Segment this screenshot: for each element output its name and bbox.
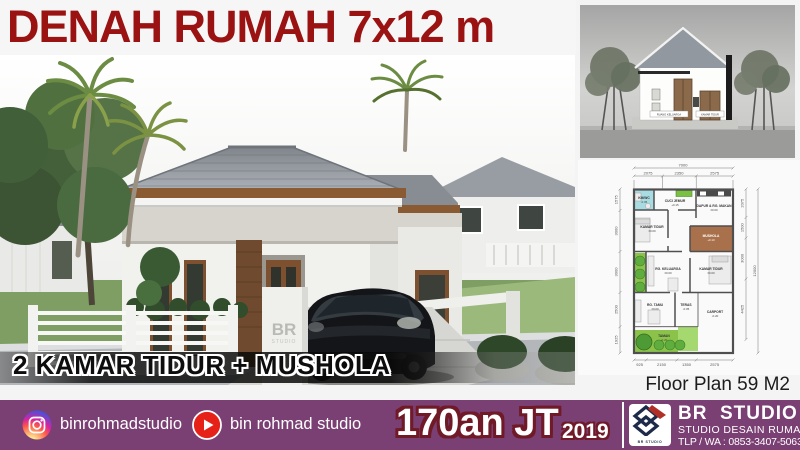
svg-text:2150: 2150 bbox=[657, 362, 667, 367]
floor-plan-drawing: KM/WC -0.05 CUCI JEMUR +0.15 DAPUR & RG.… bbox=[578, 160, 800, 375]
washer bbox=[676, 191, 692, 197]
svg-text:±0.00: ±0.00 bbox=[710, 208, 718, 212]
brand-name: BR STUDIO bbox=[678, 403, 798, 425]
svg-text:1500: 1500 bbox=[740, 222, 745, 232]
house-render-panel: BR STUDIO bbox=[0, 55, 575, 385]
render-caption: 2 KAMAR TIDUR + MUSHOLA bbox=[13, 350, 391, 381]
section-panel: RUANG KELUARGA KAMAR TIDUR bbox=[580, 5, 795, 158]
svg-text:925: 925 bbox=[636, 362, 643, 367]
section-label-kamar-tidur: KAMAR TIDUR bbox=[701, 112, 719, 116]
house-section: RUANG KELUARGA KAMAR TIDUR bbox=[580, 5, 795, 158]
price-text: 170an JT bbox=[396, 402, 559, 445]
svg-text:7000: 7000 bbox=[679, 163, 689, 168]
br-watermark-line1: BR bbox=[272, 320, 297, 339]
svg-text:±0.00: ±0.00 bbox=[648, 229, 656, 233]
instagram-icon bbox=[22, 410, 52, 440]
br-studio-logo: BR STUDIO bbox=[629, 404, 671, 446]
year-text: 2019 bbox=[562, 420, 609, 444]
svg-text:2075: 2075 bbox=[644, 171, 654, 176]
svg-text:1575: 1575 bbox=[614, 195, 619, 205]
svg-text:-0.20: -0.20 bbox=[712, 314, 719, 318]
svg-text:±0.00: ±0.00 bbox=[664, 271, 672, 275]
section-label-ruang-keluarga: RUANG KELUARGA bbox=[657, 112, 681, 116]
youtube-handle: bin rohmad studio bbox=[230, 415, 361, 434]
floor-plan-panel: KM/WC -0.05 CUCI JEMUR +0.15 DAPUR & RG.… bbox=[578, 160, 800, 375]
svg-text:+0.10: +0.10 bbox=[707, 238, 715, 242]
floor-plan-caption: Floor Plan 59 M2 bbox=[580, 374, 795, 396]
brand-subtitle: STUDIO DESAIN RUMAH bbox=[678, 424, 800, 436]
brand-contact: TLP / WA : 0853-3407-5063 bbox=[678, 436, 800, 448]
br-logo-mark bbox=[632, 404, 668, 436]
svg-text:2350: 2350 bbox=[675, 171, 685, 176]
page-title: DENAH RUMAH 7x12 m bbox=[7, 1, 494, 53]
svg-text:2575: 2575 bbox=[710, 362, 720, 367]
footer-bar: binrohmadstudio bin rohmad studio 170an … bbox=[0, 400, 800, 450]
svg-text:±0.00: ±0.00 bbox=[651, 307, 659, 311]
svg-text:+0.15: +0.15 bbox=[671, 203, 679, 207]
svg-text:-0.05: -0.05 bbox=[641, 200, 648, 204]
svg-text:-0.05: -0.05 bbox=[683, 307, 690, 311]
svg-text:3000: 3000 bbox=[614, 226, 619, 236]
thumbnail-page: DENAH RUMAH 7x12 m bbox=[0, 0, 800, 450]
ground bbox=[580, 129, 795, 158]
house-render-scene: BR STUDIO bbox=[0, 55, 575, 385]
svg-text:1925: 1925 bbox=[614, 335, 619, 345]
svg-text:2075: 2075 bbox=[740, 198, 745, 208]
svg-text:12000: 12000 bbox=[752, 265, 757, 277]
br-watermark-line2: STUDIO bbox=[272, 339, 297, 345]
instagram-handle: binrohmadstudio bbox=[60, 415, 182, 434]
svg-text:2500: 2500 bbox=[614, 304, 619, 314]
header-banner: DENAH RUMAH 7x12 m bbox=[0, 0, 576, 55]
svg-text:3000: 3000 bbox=[614, 267, 619, 277]
svg-text:4425: 4425 bbox=[740, 304, 745, 314]
svg-text:2575: 2575 bbox=[710, 171, 720, 176]
br-logo-caption: BR STUDIO bbox=[629, 440, 671, 444]
footer-divider bbox=[622, 402, 624, 448]
svg-text:3000: 3000 bbox=[740, 253, 745, 263]
youtube-icon bbox=[192, 410, 222, 440]
svg-text:±0.00: ±0.00 bbox=[707, 271, 715, 275]
svg-text:1350: 1350 bbox=[682, 362, 692, 367]
svg-text:-0.20: -0.20 bbox=[661, 338, 668, 342]
